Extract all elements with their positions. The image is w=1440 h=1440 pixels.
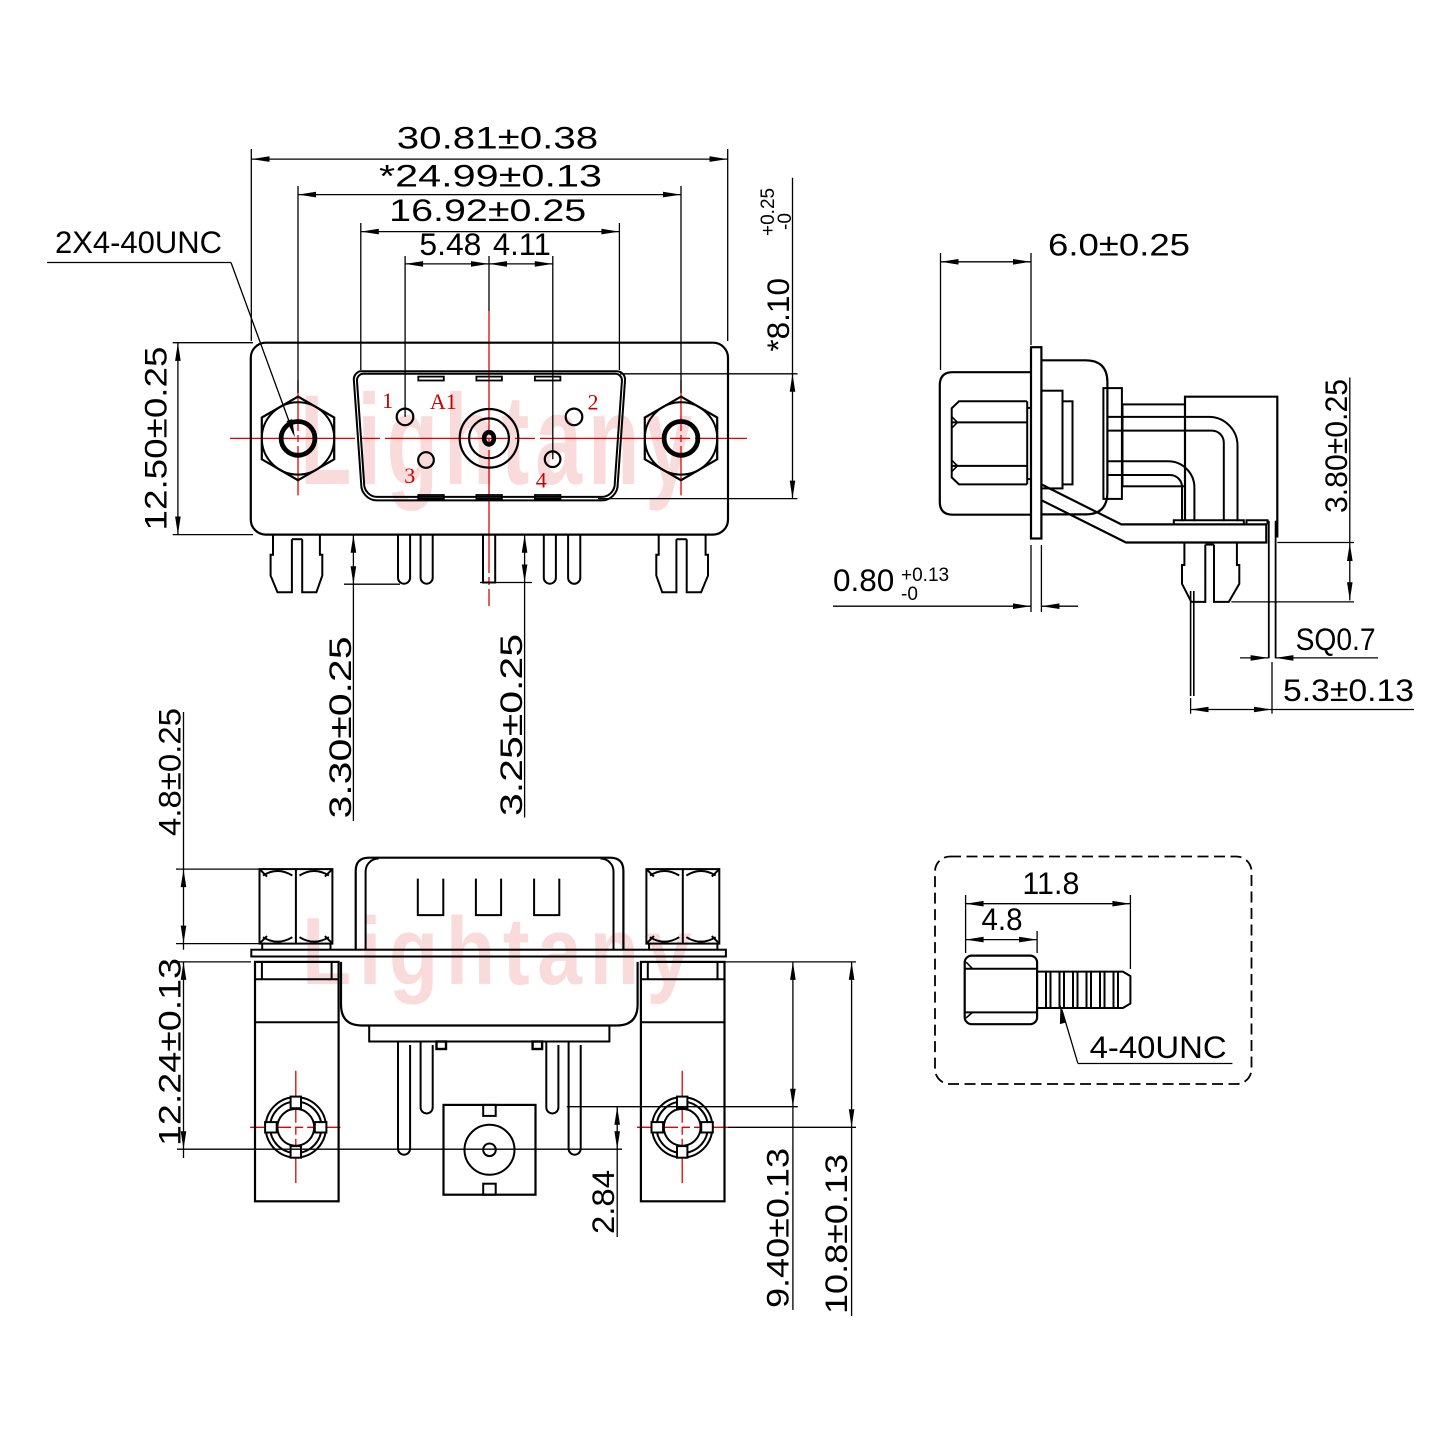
svg-text:-0: -0 <box>901 584 918 605</box>
svg-text:A1: A1 <box>430 389 457 414</box>
svg-text:1: 1 <box>382 388 393 413</box>
svg-text:4-40UNC: 4-40UNC <box>1090 1029 1227 1065</box>
svg-text:3: 3 <box>404 463 415 488</box>
svg-text:4.8±0.25: 4.8±0.25 <box>151 708 187 836</box>
svg-text:9.40±0.13: 9.40±0.13 <box>760 1148 796 1308</box>
svg-text:5.3±0.13: 5.3±0.13 <box>1283 672 1414 708</box>
svg-text:4: 4 <box>536 468 547 493</box>
svg-text:11.8: 11.8 <box>1022 865 1079 901</box>
svg-text:Lightany: Lightany <box>300 369 698 512</box>
svg-text:3.80±0.25: 3.80±0.25 <box>1318 379 1354 513</box>
svg-text:12.50±0.25: 12.50±0.25 <box>138 347 174 531</box>
svg-text:6.0±0.25: 6.0±0.25 <box>1048 227 1190 263</box>
svg-text:2X4-40UNC: 2X4-40UNC <box>55 224 222 260</box>
svg-text:*24.99±0.13: *24.99±0.13 <box>379 157 602 193</box>
svg-text:2: 2 <box>588 390 599 415</box>
svg-text:2.84: 2.84 <box>585 1170 621 1234</box>
svg-text:5.48: 5.48 <box>419 226 481 262</box>
svg-text:*8.10: *8.10 <box>760 278 796 352</box>
svg-text:SQ0.7: SQ0.7 <box>1296 621 1376 657</box>
svg-text:10.8±0.13: 10.8±0.13 <box>818 1154 854 1314</box>
svg-text:12.24±0.13: 12.24±0.13 <box>151 958 187 1146</box>
svg-text:3.25±0.25: 3.25±0.25 <box>493 634 529 816</box>
svg-text:4.11: 4.11 <box>493 226 551 262</box>
svg-text:30.81±0.38: 30.81±0.38 <box>397 120 599 156</box>
svg-text:3.30±0.25: 3.30±0.25 <box>322 637 358 819</box>
svg-text:0.80: 0.80 <box>833 562 894 598</box>
svg-text:16.92±0.25: 16.92±0.25 <box>389 192 586 228</box>
svg-text:+0.13: +0.13 <box>901 565 949 586</box>
svg-text:4.8: 4.8 <box>982 901 1023 937</box>
svg-text:-0: -0 <box>775 213 796 230</box>
